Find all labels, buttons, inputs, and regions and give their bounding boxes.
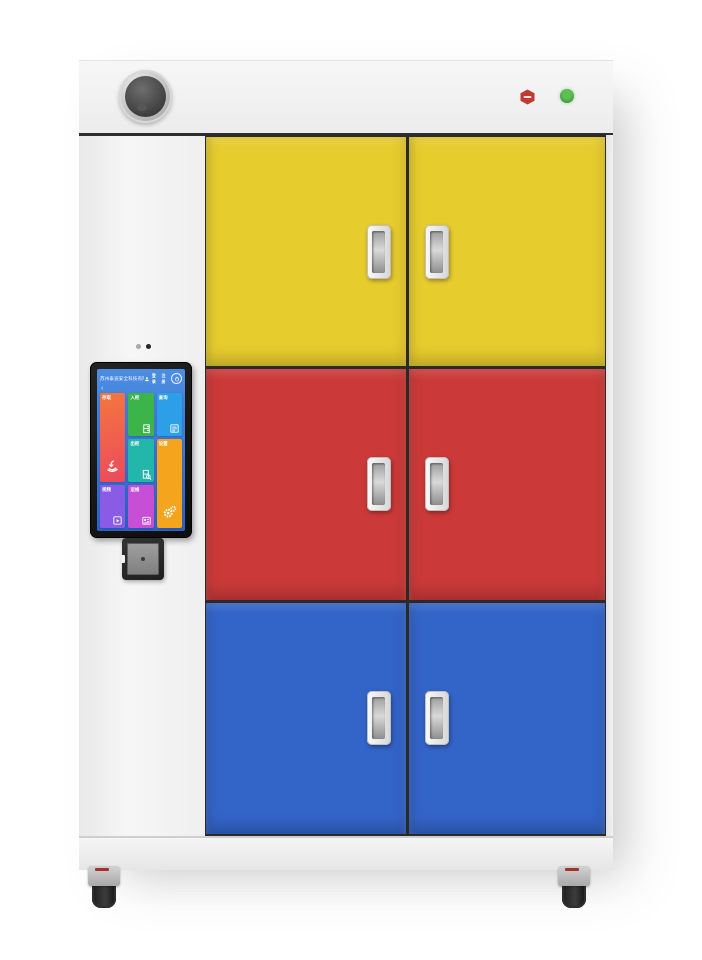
door-top-left[interactable] — [206, 137, 406, 366]
tile-store-in[interactable]: 入柜 — [128, 393, 153, 436]
door-handle[interactable] — [367, 225, 391, 279]
door-middle-right[interactable] — [409, 369, 605, 600]
video-file-icon — [112, 515, 123, 526]
brand-badge-icon — [519, 89, 536, 105]
tile-label: 视频 — [102, 487, 123, 493]
tile-deposit[interactable]: 存取 — [100, 393, 125, 482]
register-link[interactable]: 注册 — [162, 373, 170, 385]
handle-recess — [430, 231, 443, 273]
door-handle[interactable] — [425, 225, 449, 279]
tile-query[interactable]: 查询 — [157, 393, 182, 436]
door-handle[interactable] — [367, 457, 391, 511]
touchscreen[interactable]: 苏州泰迪安全科技有限公司 登录 注册 — [97, 369, 185, 531]
tile-settings[interactable]: 设置 — [157, 439, 182, 528]
tile-maintenance[interactable]: 运维 — [128, 485, 153, 528]
locker-in-icon — [141, 423, 152, 434]
gear-icon — [162, 505, 177, 520]
hand-deposit-icon — [105, 459, 120, 474]
power-button[interactable] — [171, 373, 182, 384]
door-bottom-left[interactable] — [206, 603, 406, 834]
top-panel — [79, 60, 613, 134]
front-camera-icon — [146, 344, 151, 349]
card-reader[interactable] — [122, 538, 164, 580]
camera-lens-icon — [125, 76, 166, 117]
handle-recess — [430, 697, 443, 739]
tile-label: 存取 — [102, 395, 123, 401]
right-edge-panel — [606, 135, 613, 836]
door-bottom-right[interactable] — [409, 603, 605, 834]
caster-wheel-left — [86, 864, 124, 910]
power-icon — [174, 376, 180, 382]
login-link[interactable]: 登录 — [152, 373, 160, 385]
smart-locker-cabinet: 苏州泰迪安全科技有限公司 登录 注册 — [79, 60, 613, 868]
screen-header: 苏州泰迪安全科技有限公司 登录 注册 — [100, 372, 182, 385]
back-button[interactable]: ‹ — [100, 385, 182, 393]
handle-recess — [372, 231, 385, 273]
door-grid — [205, 135, 606, 836]
tile-label: 运维 — [130, 487, 151, 493]
tile-label: 设置 — [159, 441, 180, 447]
company-name: 苏州泰迪安全科技有限公司 — [100, 376, 144, 382]
door-middle-left[interactable] — [206, 369, 406, 600]
camera-dome-icon — [119, 70, 172, 123]
reader-sensor-icon — [141, 557, 145, 561]
base-panel — [79, 836, 613, 870]
status-light — [560, 89, 574, 103]
handle-recess — [430, 463, 443, 505]
handle-recess — [372, 697, 385, 739]
handle-recess — [372, 463, 385, 505]
reader-tab — [121, 555, 125, 563]
tile-label: 查询 — [159, 395, 180, 401]
record-list-icon — [169, 423, 180, 434]
tile-take-out[interactable]: 出柜 — [128, 439, 153, 482]
locker-out-icon — [141, 469, 152, 480]
caster-brake — [565, 868, 579, 871]
tile-video[interactable]: 视频 — [100, 485, 125, 528]
app-tile-grid: 存取 入柜 — [100, 393, 182, 528]
door-handle[interactable] — [367, 691, 391, 745]
door-handle[interactable] — [425, 457, 449, 511]
touchscreen-bezel: 苏州泰迪安全科技有限公司 登录 注册 — [90, 362, 192, 538]
tile-label: 入柜 — [130, 395, 151, 401]
tile-label: 出柜 — [130, 441, 151, 447]
camera-glint — [137, 104, 147, 111]
caster-brake — [95, 868, 109, 871]
door-handle[interactable] — [425, 691, 449, 745]
user-icon — [144, 376, 150, 382]
door-top-right[interactable] — [409, 137, 605, 366]
id-card-icon — [141, 515, 152, 526]
caster-wheel-right — [556, 864, 594, 910]
proximity-sensor-icon — [136, 344, 141, 349]
control-pillar: 苏州泰迪安全科技有限公司 登录 注册 — [79, 136, 205, 836]
